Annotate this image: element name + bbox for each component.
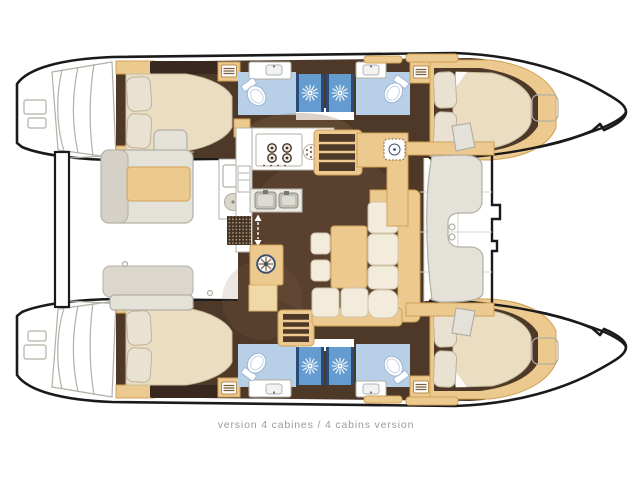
catamaran-floor-plan (0, 0, 640, 480)
cockpit-table (103, 266, 193, 297)
sofa-cushion (312, 288, 339, 317)
stool (311, 233, 330, 254)
saloon-front-beam (406, 142, 494, 155)
sofa-cushion (368, 266, 398, 289)
stove-icon (256, 134, 302, 166)
foredeck-bulkhead (492, 149, 500, 308)
caption: version 4 cabines / 4 cabins version (0, 419, 632, 431)
stool (311, 260, 330, 281)
sofa-cushion (368, 234, 398, 265)
stairs-port-hull (314, 130, 362, 175)
helm-wheel-icon (257, 255, 275, 273)
saloon-table (331, 226, 367, 288)
double-sink-icon (250, 189, 302, 212)
saloon-front-beam (406, 303, 494, 316)
bench-cushion (127, 167, 190, 201)
cockpit-bench (110, 295, 193, 310)
transom-platform (55, 152, 69, 307)
fridge-icon (238, 166, 250, 192)
stairs-starboard-hull (278, 310, 314, 346)
sofa-cushion (368, 290, 398, 318)
catamaran-floor-plan-page: version 4 cabines / 4 cabins version (0, 0, 640, 480)
sofa-cushion (341, 288, 368, 317)
